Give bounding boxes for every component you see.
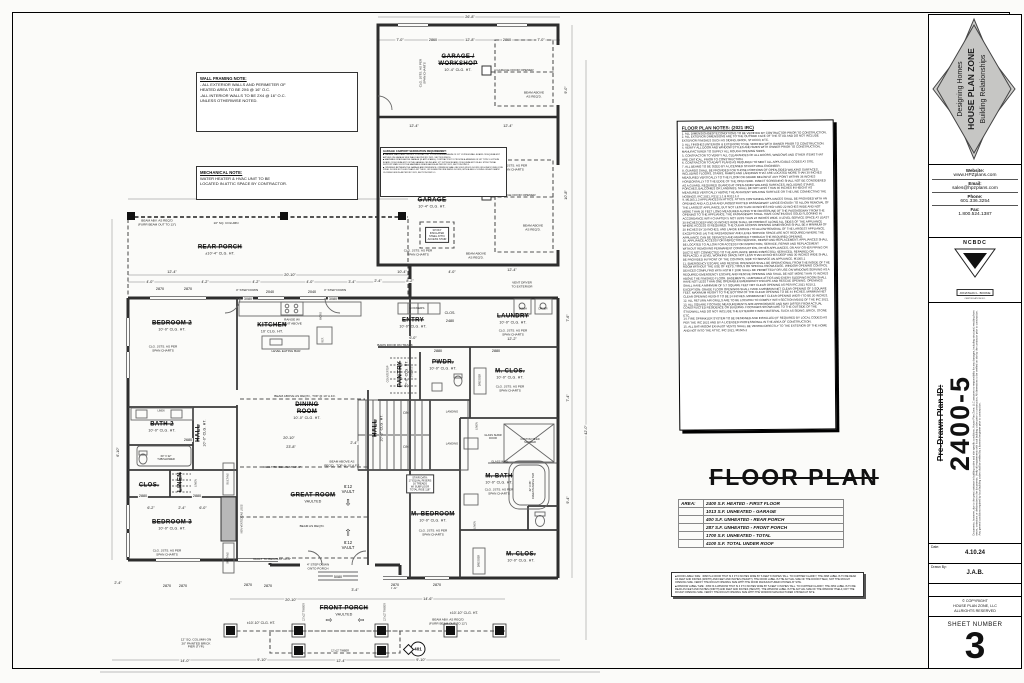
phone-value: 601.336.3254 bbox=[932, 199, 1018, 206]
contact-info: Website: www.HPZplans.com Email: sales@h… bbox=[929, 165, 1021, 238]
logo-line2: HOUSE PLAN ZONE bbox=[966, 48, 976, 130]
area-row: 1700 S.F. UNHEATED - TOTAL bbox=[704, 532, 844, 540]
drawn-by-label: Drawn By: bbox=[931, 565, 947, 569]
wall-framing-note-title: WALL FRAMING NOTE: bbox=[200, 76, 354, 81]
certification-seal: NCBDC JONATHAN L. BOONE CERTIFICATION NO… bbox=[929, 238, 1021, 303]
stairs bbox=[358, 400, 468, 470]
date-value: 4.10.24 bbox=[929, 550, 1021, 556]
floor-plan-notes-body: 1. ALL DIMENSIONS&SITECONDITIONS TO BE V… bbox=[682, 131, 831, 333]
area-row: 1013 S.F. UNHEATED - GARAGE bbox=[704, 508, 844, 516]
drawn-by-cell: Drawn By: J.A.B. bbox=[929, 564, 1021, 584]
date-label: Date: bbox=[931, 545, 939, 549]
mechanical-note: MECHANICAL NOTE: WATER HEATER & HVAC UNI… bbox=[196, 166, 358, 200]
plan-id-cell: Pre-Drawn Plan ID: 2400-5 Documents, how… bbox=[929, 303, 1021, 544]
fax-value: 1.800.524.1387 bbox=[932, 212, 1018, 218]
floor-plan-notes-panel: FLOOR PLAN NOTES: (2021 IRC) 1. ALL DIME… bbox=[677, 119, 837, 430]
wall-framing-note-body: - ALL EXTERIOR WALLS AND PERIMETER OF HE… bbox=[200, 82, 354, 103]
area-row: 4100 S.F. TOTAL UNDER ROOF bbox=[704, 540, 844, 548]
area-label: AREA: bbox=[679, 500, 704, 508]
seal-cert-number: CERTIFICATION NO. bbox=[964, 298, 985, 300]
garage-separation-note: GARAGE/ CARPORT SEPARATION REQUIREMENT: … bbox=[380, 147, 507, 197]
website-value[interactable]: www.HPZplans.com bbox=[932, 173, 1018, 180]
area-row: 2400 S.F. HEATED - FIRST FLOOR bbox=[704, 500, 844, 508]
blank-cell bbox=[929, 584, 1021, 597]
area-row: 287 S.F. UNHEATED - FRONT PORCH bbox=[704, 524, 844, 532]
wall-framing-note: WALL FRAMING NOTE: - ALL EXTERIOR WALLS … bbox=[196, 72, 358, 132]
email-value[interactable]: sales@hpzplans.com bbox=[932, 186, 1018, 193]
garage-separation-note-title: GARAGE/ CARPORT SEPARATION REQUIREMENT: bbox=[383, 150, 504, 153]
floor-plan-drawing bbox=[0, 0, 1024, 683]
area-table: AREA: 2400 S.F. HEATED - FIRST FLOOR 101… bbox=[678, 499, 844, 548]
sheet-number-value: 3 bbox=[929, 628, 1021, 663]
company-logo: Designing Homes HOUSE PLAN ZONE Building… bbox=[929, 15, 1021, 165]
plan-disclaimer: Documents, however, due to the great var… bbox=[973, 311, 995, 536]
door-window-label-notes: ■ DOOR LABEL/ SIZE: 3068 IS A DOOR THAT … bbox=[671, 572, 864, 597]
mechanical-note-title: MECHANICAL NOTE: bbox=[200, 170, 354, 175]
logo-line3: Building Relationships bbox=[980, 54, 987, 123]
interior-walls bbox=[128, 298, 558, 578]
area-row: 400 S.F. UNHEATED - REAR PORCH bbox=[704, 516, 844, 524]
mechanical-note-body: WATER HEATER & HVAC UNIT TO BE LOCATED I… bbox=[200, 176, 354, 187]
sheet-number-cell: SHEET NUMBER 3 bbox=[929, 617, 1021, 668]
logo-line1: Designing Homes bbox=[957, 61, 964, 117]
title-block: Designing Homes HOUSE PLAN ZONE Building… bbox=[928, 14, 1022, 669]
drawn-by-value: J.A.B. bbox=[929, 570, 1021, 576]
date-cell: Date: 4.10.24 bbox=[929, 544, 1021, 564]
copyright-notice: © COPYRIGHT HOUSE PLAN ZONE, LLC ALLRIGH… bbox=[929, 597, 1021, 617]
seal-triangle-icon bbox=[952, 246, 998, 280]
plan-sheet: GARAGE / WORKSHOP10'-4" CLG. HT.GARAGE10… bbox=[0, 0, 1024, 683]
sheet-title: FLOOR PLAN bbox=[668, 464, 920, 491]
garage-separation-note-body: ■ GARAGE WALLS AND CEILING: CONTRACTOR T… bbox=[383, 154, 504, 174]
seal-name: JONATHAN L. BOONE bbox=[957, 289, 994, 296]
